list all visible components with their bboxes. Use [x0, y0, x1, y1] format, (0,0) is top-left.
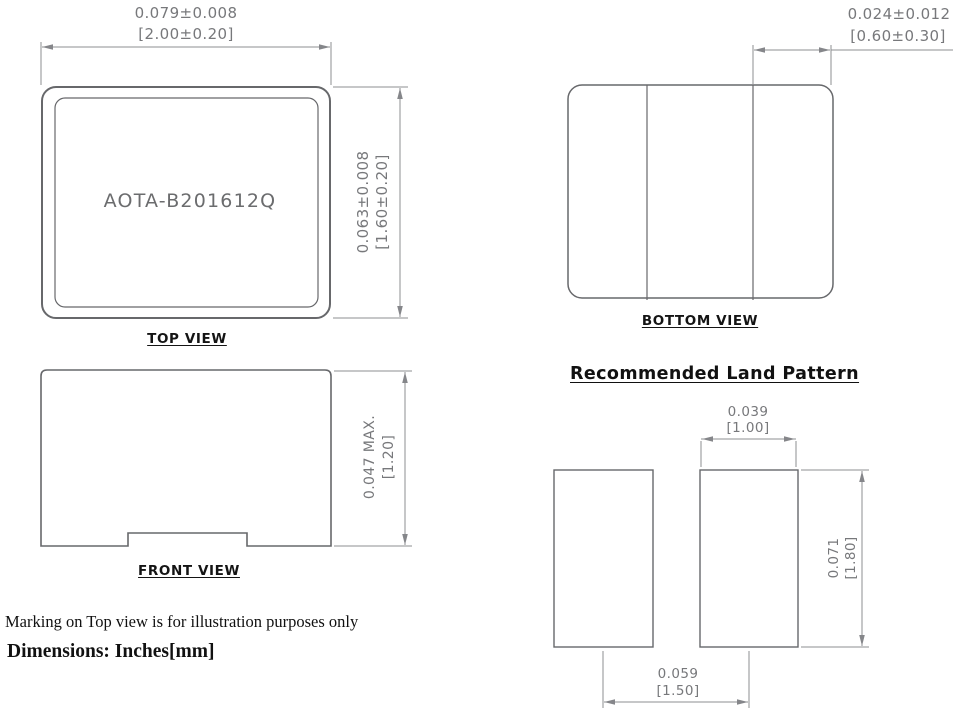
units-note: Dimensions: Inches[mm] [7, 641, 214, 663]
bottom-view-terminal-dim-mm: [0.60±0.30] [850, 27, 945, 45]
top-view-label: TOP VIEW [147, 331, 227, 347]
land-pad-width-dim-inch: 0.039 [728, 404, 769, 420]
top-view-height-dim-inch: 0.063±0.008 [354, 151, 373, 254]
land-pad-width-dim-mm: [1.00] [727, 420, 770, 436]
front-view-label: FRONT VIEW [138, 563, 240, 579]
marking-note: Marking on Top view is for illustration … [5, 612, 358, 632]
front-view-height-dim-inch: 0.047 MAX. [361, 415, 380, 499]
land-pad-height-dim: 0.071 [1.80] [826, 537, 860, 580]
land-pattern-title: Recommended Land Pattern [570, 364, 859, 384]
bottom-view-outline [568, 85, 833, 300]
bottom-view-label: BOTTOM VIEW [642, 313, 758, 329]
drawing-linework [0, 0, 955, 714]
land-pad-width-dimension [701, 439, 796, 467]
front-view-height-dim-mm: [1.20] [380, 415, 399, 499]
top-view-width-dim-inch: 0.079±0.008 [135, 4, 238, 22]
top-view-height-dim: 0.063±0.008 [1.60±0.20] [354, 151, 392, 254]
top-view-width-dim-mm: [2.00±0.20] [138, 25, 233, 43]
front-view-height-dim: 0.047 MAX. [1.20] [361, 415, 399, 499]
land-pad-pitch-dim-inch: 0.059 [658, 666, 699, 682]
land-pad-height-dim-inch: 0.071 [826, 537, 843, 580]
front-view-outline [41, 370, 331, 546]
mechanical-drawing-sheet: 0.079±0.008 [2.00±0.20] 0.063±0.008 [1.6… [0, 0, 955, 714]
land-pad-pitch-dim-mm: [1.50] [657, 683, 700, 699]
bottom-view-terminal-dim-inch: 0.024±0.012 [848, 5, 951, 23]
part-number-marking: AOTA-B201612Q [104, 190, 277, 212]
top-view-width-dimension [41, 42, 331, 85]
bottom-view-terminal-dimension [753, 45, 953, 85]
top-view-height-dim-mm: [1.60±0.20] [373, 151, 392, 254]
land-pattern-pads [554, 470, 798, 647]
land-pad-height-dim-mm: [1.80] [843, 537, 860, 580]
